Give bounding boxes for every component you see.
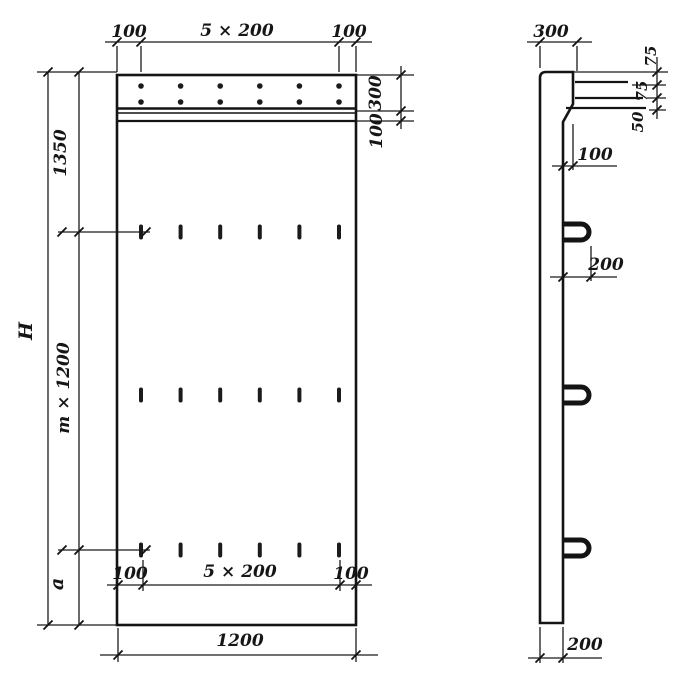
anchor-dot xyxy=(138,99,144,105)
anchor-dot xyxy=(178,99,184,105)
dim-label-loop-projection: 200 xyxy=(587,255,624,275)
dim-label-top-spacing: 5 × 200 xyxy=(200,21,274,41)
dim-label-cap-upper: 75 xyxy=(642,46,660,67)
dim-label-module-height: m × 1200 xyxy=(54,342,74,434)
dim-label-panel-thickness: 200 xyxy=(566,635,603,655)
anchor-dot xyxy=(217,83,223,89)
slot-mark xyxy=(258,543,262,558)
slot-mark xyxy=(297,543,301,558)
slot-mark xyxy=(258,388,262,403)
dim-label-top-right-margin: 100 xyxy=(331,22,367,42)
dim-label-cap-middle: 75 xyxy=(633,81,651,102)
dim-label-band-offset: 100 xyxy=(367,113,387,149)
dim-label-step-offset: 100 xyxy=(577,145,613,165)
anchor-dot xyxy=(336,99,342,105)
slot-mark xyxy=(179,225,183,240)
slot-mark xyxy=(337,225,341,240)
dim-label-bottom-section: a xyxy=(46,578,68,590)
side-dimension-lines xyxy=(527,42,668,663)
anchor-dot xyxy=(297,99,303,105)
slot-marks xyxy=(139,225,341,558)
anchor-dot xyxy=(297,83,303,89)
drawing-canvas: 100 5 × 200 100 300 100 1350 H m × 1200 … xyxy=(0,0,700,700)
anchor-dot xyxy=(257,83,263,89)
panel-outline xyxy=(117,75,356,625)
slot-mark xyxy=(218,543,222,558)
dim-label-bottom-right-margin: 100 xyxy=(333,564,369,584)
cap-band-lines xyxy=(117,109,356,122)
slot-mark xyxy=(337,543,341,558)
slot-mark xyxy=(258,225,262,240)
dim-label-top-section: 1350 xyxy=(51,129,71,176)
dim-label-overall-width: 1200 xyxy=(216,631,263,651)
anchor-dot xyxy=(257,99,263,105)
slot-mark xyxy=(179,543,183,558)
drawing-sheet: 100 5 × 200 100 300 100 1350 H m × 1200 … xyxy=(0,0,700,700)
front-view: 100 5 × 200 100 300 100 1350 H m × 1200 … xyxy=(15,21,414,662)
dim-label-overall-height: H xyxy=(15,321,37,341)
slot-mark xyxy=(297,388,301,403)
lifting-loop xyxy=(563,540,589,556)
slot-mark xyxy=(139,388,143,403)
dim-label-side-top-width: 300 xyxy=(533,22,569,42)
lifting-loop xyxy=(563,387,589,403)
dim-label-cap-lower: 50 xyxy=(629,111,647,132)
dim-label-bottom-left-margin: 100 xyxy=(112,564,148,584)
lifting-loop xyxy=(563,224,589,240)
anchor-dot xyxy=(138,83,144,89)
slot-mark xyxy=(297,225,301,240)
slot-mark xyxy=(218,225,222,240)
slot-mark xyxy=(218,388,222,403)
dim-label-cap-band-height: 300 xyxy=(366,75,386,111)
slot-mark xyxy=(179,388,183,403)
side-view: 300 75 75 50 100 200 200 xyxy=(527,22,668,663)
anchor-dot xyxy=(217,99,223,105)
anchor-dots xyxy=(138,83,342,105)
slot-mark xyxy=(337,388,341,403)
anchor-dot xyxy=(336,83,342,89)
dim-label-bottom-spacing: 5 × 200 xyxy=(203,562,277,582)
dim-label-top-left-margin: 100 xyxy=(111,22,147,42)
anchor-dot xyxy=(178,83,184,89)
